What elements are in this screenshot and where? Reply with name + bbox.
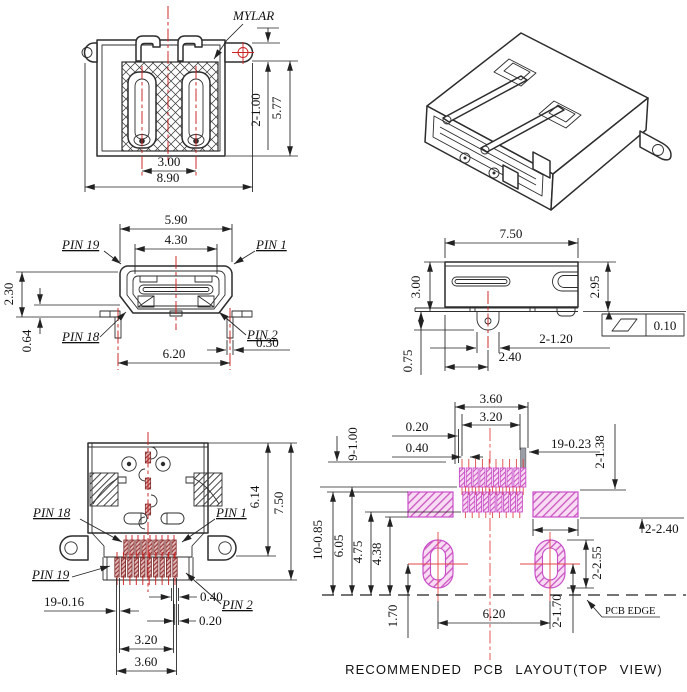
dim-opening-width: 4.30 [165, 232, 188, 247]
dim-span-outer: 3.60 [135, 654, 158, 669]
flatness-symbol [612, 319, 637, 331]
pcb-dim-slot-h: 2-2.55 [589, 546, 604, 580]
side-u-cutout [553, 272, 579, 291]
pcb-dim-pad-width: 19-0.23 [551, 436, 591, 451]
dimple-left [122, 457, 136, 471]
dim-tail-width: 19-0.16 [44, 594, 85, 609]
flatness-frame: 0.10 [602, 312, 684, 337]
pcb-dim-slot-span: 6.20 [483, 606, 506, 621]
pcb-dim-lock-pad-h: 2-1.38 [592, 435, 607, 469]
pin1-label: PIN 1 [255, 237, 287, 252]
pcb-dim-depth-c: 4.38 [369, 543, 384, 566]
dim-pin-w2: 0.20 [199, 613, 222, 628]
dim-height-left: 3.00 [408, 276, 423, 299]
rear-slot-left [124, 513, 147, 524]
pin19-label: PIN 19 [61, 237, 100, 252]
dim-leg-span: 6.20 [163, 346, 186, 361]
pcb-dim-span-inner: 3.20 [480, 409, 503, 424]
rear-view: MYLAR 2-1.00 5.77 3.00 8.90 [82, 6, 298, 192]
isometric-view [425, 33, 671, 210]
shell-pad-right [533, 492, 578, 517]
pcb-dim-slot-edge: 2-1.70 [549, 594, 564, 628]
pcb-pad-row-bottom [463, 486, 523, 518]
dim-overall-width: 8.90 [157, 170, 180, 185]
pcb-dim-depth-b: 4.75 [350, 541, 365, 564]
drawing-sheet: MYLAR 2-1.00 5.77 3.00 8.90 [0, 0, 687, 692]
top-pin1-label: PIN 1 [215, 505, 247, 520]
top-ear-left [60, 536, 88, 560]
emi-spring-left [90, 473, 126, 506]
dim-span-inner: 3.20 [135, 632, 158, 647]
front-view: 5.90 4.30 PIN 19 PIN 1 2.30 0.64 PIN 18 … [1, 212, 290, 370]
latch-window-left [138, 296, 154, 307]
mount-ear-left [85, 43, 98, 62]
mylar-label: MYLAR [232, 8, 274, 23]
pcb-dim-lock-pad-w: 2-2.40 [645, 521, 679, 536]
dimple-right [156, 457, 170, 471]
pcb-dim-gap: 0.20 [406, 419, 429, 434]
top-pin19-label: PIN 19 [31, 567, 70, 582]
dim-legs: 2-1.20 [539, 331, 573, 346]
connector-drawing: MYLAR 2-1.00 5.77 3.00 8.90 [0, 0, 687, 692]
pcb-edge-label: PCB EDGE [605, 606, 655, 617]
board-lock-tails [117, 578, 177, 623]
side-view: 7.50 3.00 2.95 0.75 2-1.20 2.40 0.10 [400, 226, 686, 375]
top-pin18-label: PIN 18 [32, 505, 71, 520]
pcb-dim-pad-len-bot: 10-0.85 [310, 520, 325, 560]
dim-leg-width: 0.30 [256, 335, 279, 350]
top-ear-right [208, 536, 236, 560]
flatness-value: 0.10 [654, 318, 677, 333]
dim-opening-height: 2.30 [1, 283, 16, 306]
dim-height: 5.77 [269, 96, 284, 119]
shell-pad-left [408, 492, 453, 517]
dim-standoff: 0.75 [400, 350, 415, 373]
pin18-label: PIN 18 [61, 329, 100, 344]
dim-height-right: 2.95 [587, 276, 602, 299]
dim-side-width: 7.50 [500, 226, 523, 241]
side-body-outline [445, 262, 578, 307]
latch-clip-left [136, 36, 160, 61]
dim-hole-offset: 2.40 [499, 349, 522, 364]
pcb-dim-edge-off: 1.70 [385, 605, 400, 628]
dim-top-width: 5.90 [165, 212, 188, 227]
dim-total-depth: 7.50 [271, 492, 286, 515]
pcb-dim-depth-a: 6.05 [331, 535, 346, 558]
dim-ear-hole: 2-1.00 [248, 93, 263, 127]
dim-body-depth: 6.14 [247, 485, 262, 508]
side-tab-right [232, 311, 252, 317]
latch-clip-right [178, 36, 202, 61]
dim-pin-w1: 0.40 [200, 589, 223, 604]
pcb-dim-pitch: 0.40 [406, 440, 429, 455]
pcb-dim-span-outer: 3.60 [480, 391, 503, 406]
top-pin2-label: PIN 2 [221, 597, 253, 612]
lock-slot-right [520, 532, 580, 601]
pcb-dim-pad-len-top: 9-1.00 [345, 427, 360, 461]
side-tab-left [100, 311, 120, 317]
lock-slot-left [408, 532, 468, 601]
dim-pitch: 3.00 [158, 154, 181, 169]
side-slot [452, 277, 510, 286]
emi-spring-right [186, 473, 222, 506]
top-view: 6.14 7.50 PIN 18 PIN 1 PIN 19 PIN 2 19-0… [31, 432, 297, 675]
drawing-caption: RECOMMENDED PCB LAYOUT(TOP VIEW) [345, 662, 663, 677]
pcb-layout-view: 3.60 3.20 0.20 0.40 19-0.23 2-1.38 9-1.0… [310, 391, 686, 660]
dim-lip: 0.64 [19, 329, 34, 352]
rear-slot-right [161, 513, 184, 524]
latch-window-right [198, 296, 214, 307]
